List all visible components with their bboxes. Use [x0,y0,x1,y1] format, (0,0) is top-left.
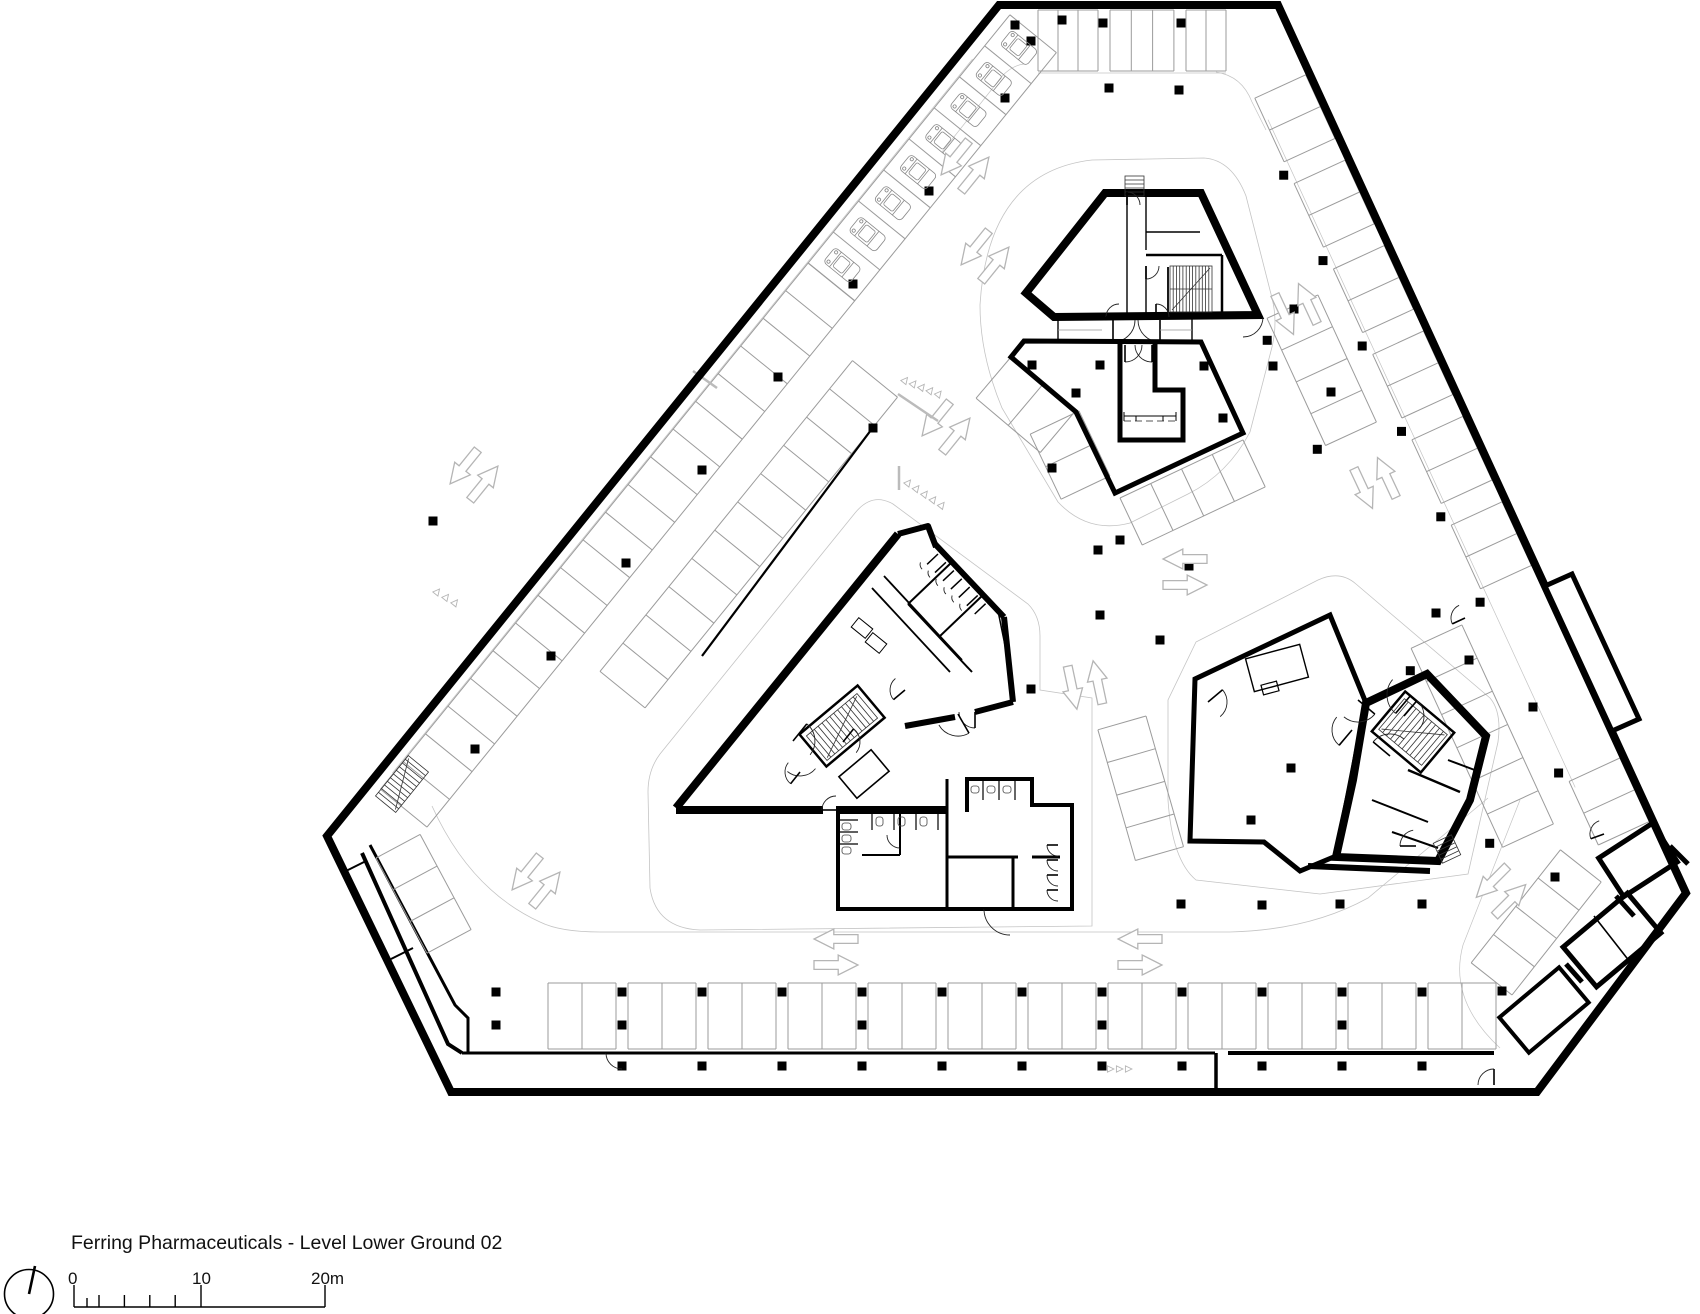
svg-text:0: 0 [68,1269,77,1288]
svg-text:10: 10 [192,1269,211,1288]
svg-text:20m: 20m [311,1269,344,1288]
svg-text:Ferring Pharmaceuticals - Leve: Ferring Pharmaceuticals - Level Lower Gr… [71,1232,502,1254]
